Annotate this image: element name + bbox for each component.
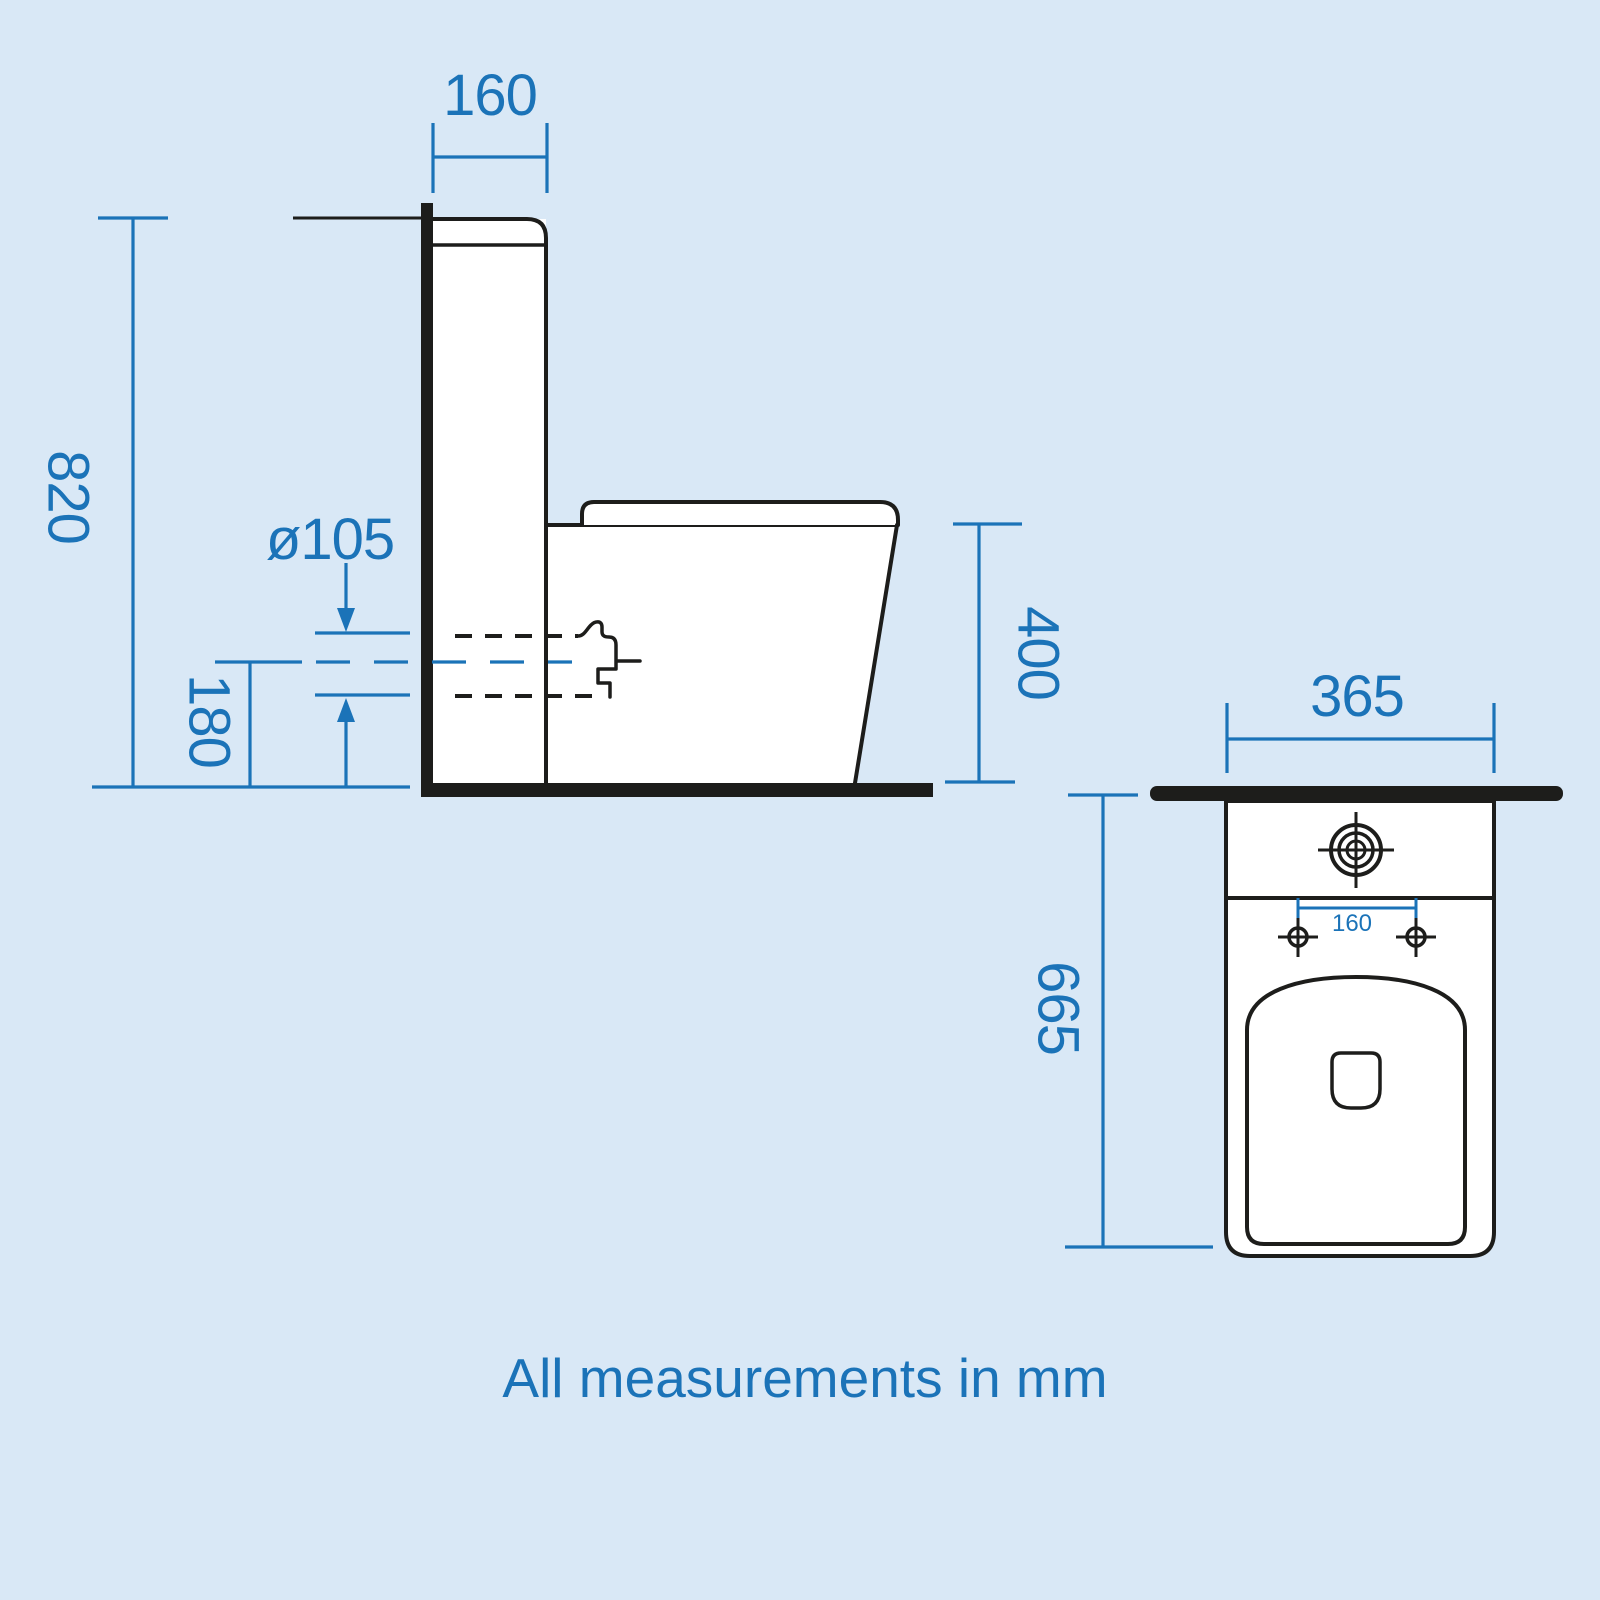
dim-label-outlet-centre-height: 180 — [177, 674, 242, 768]
wall-line — [421, 203, 433, 797]
dim-label-cistern-depth: 160 — [443, 63, 537, 128]
dim-label-overall-depth: 665 — [1026, 961, 1091, 1055]
pan-plan-outline — [1226, 801, 1494, 1256]
arrow-head-down-icon — [337, 608, 355, 632]
arrow-head-up-icon — [337, 698, 355, 722]
dim-overall-width: 365 — [1227, 664, 1494, 773]
measurements-note: All measurements in mm — [502, 1347, 1107, 1409]
pan-body-fill — [546, 525, 897, 783]
floor-line — [421, 783, 933, 797]
side-elevation-view — [293, 203, 933, 797]
dim-label-overall-width: 365 — [1310, 664, 1404, 729]
dim-label-fixing-hole-centres: 160 — [1332, 910, 1372, 937]
dim-pan-height: 400 — [945, 524, 1071, 782]
wall-line-plan — [1150, 786, 1563, 801]
cistern-body-fill — [433, 219, 546, 783]
dim-outlet-centre-height: 180 — [177, 662, 303, 787]
seat-lid-outline — [582, 502, 898, 525]
dim-outlet-diameter: ø105 — [266, 507, 410, 787]
toilet-dimension-drawing: 160 820 ø105 180 — [0, 0, 1600, 1600]
drawing-canvas: 160 820 ø105 180 — [0, 0, 1600, 1600]
plan-view — [1150, 786, 1563, 1256]
dim-overall-depth: 665 — [1026, 795, 1214, 1247]
dim-cistern-depth: 160 — [433, 63, 547, 193]
dim-label-pan-height: 400 — [1006, 606, 1071, 700]
dim-label-outlet-diameter: ø105 — [266, 507, 394, 572]
dim-label-overall-height: 820 — [36, 450, 101, 544]
